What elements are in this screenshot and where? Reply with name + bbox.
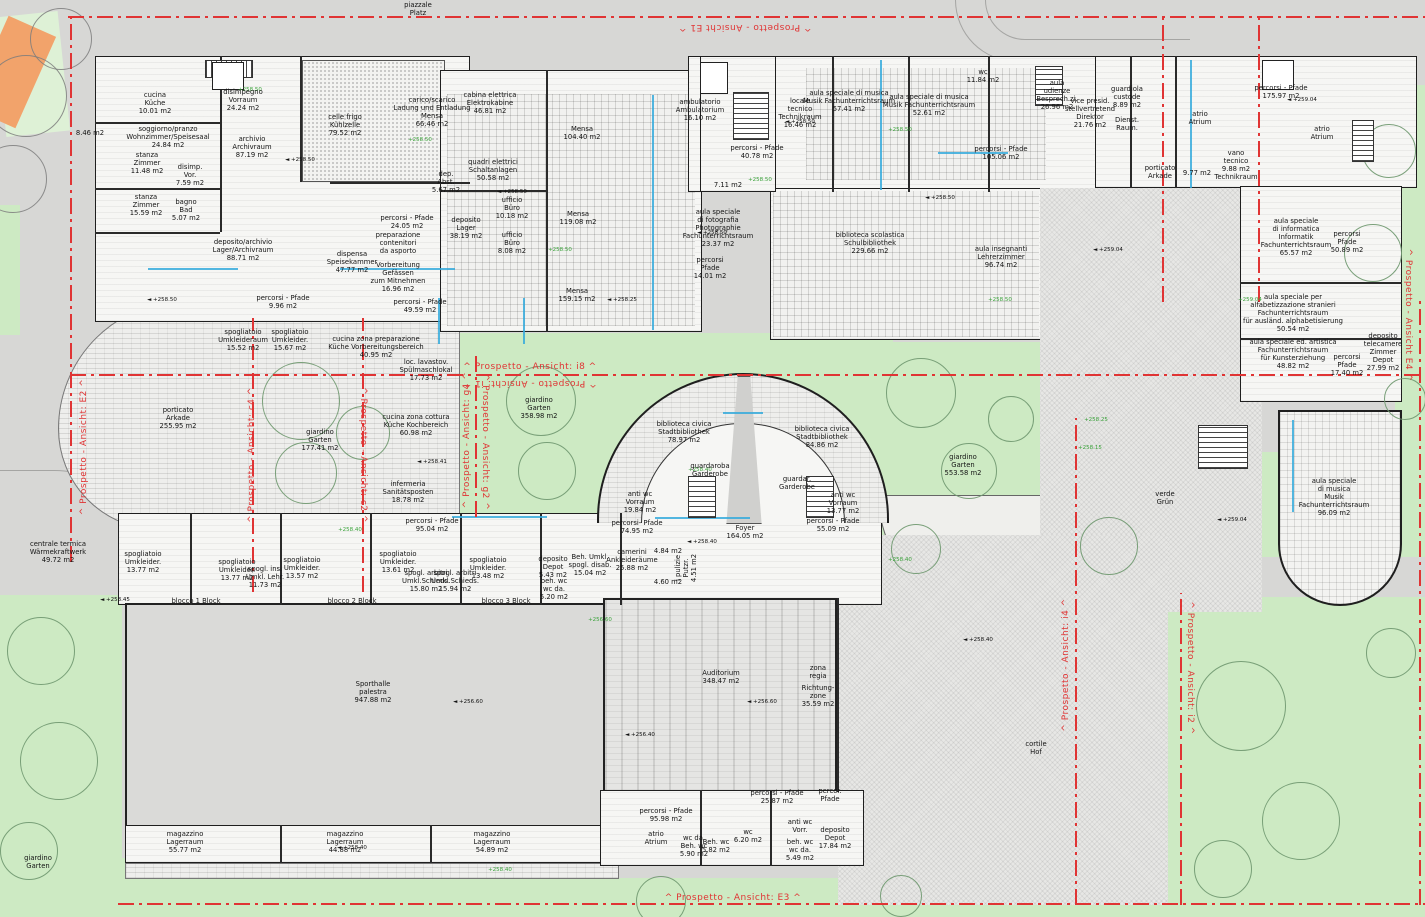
glass-line xyxy=(523,298,525,344)
wall-segment xyxy=(280,825,282,863)
tree-outline xyxy=(1080,517,1138,575)
room-label: Sporthalle palestra 947.88 m2 xyxy=(355,680,392,704)
tree-outline xyxy=(891,524,941,574)
section-label: ^ Prospetto - Ansicht: i2 ^ xyxy=(1185,601,1195,734)
glass-line xyxy=(723,412,763,414)
elevation-mark: +258.50 xyxy=(548,247,572,253)
room-label: centrale termica Wärmekraftwerk 49.72 m2 xyxy=(30,540,86,564)
elevation-mark: +258.50 xyxy=(408,137,432,143)
room-label: biblioteca scolastica Schulbibliothek 22… xyxy=(836,231,905,255)
section-label: ^ Prospetto - Ansicht: E2 ^ xyxy=(79,379,89,516)
elevation-mark: +258.40 xyxy=(338,527,362,533)
tree-outline xyxy=(1262,782,1340,860)
road-arc xyxy=(985,0,1190,40)
room-label: wc 11.84 m2 xyxy=(967,68,1000,84)
room-label: Mensa 104.40 m2 xyxy=(564,125,601,141)
room-label: percorsi- Pfade 74.95 m2 xyxy=(611,519,662,535)
room-label: beh. wc wc da. 5.49 m2 xyxy=(786,838,814,862)
room-label: guardiola custode 8.89 m2 xyxy=(1111,85,1143,109)
elevation-mark: ◄ +258.50 xyxy=(497,189,527,195)
elevation-mark: ◄ +258.45 xyxy=(100,597,130,603)
elevation-mark: ◄ +259.04 xyxy=(1217,517,1247,523)
room-label: anti wc Vorr. xyxy=(788,818,812,834)
elevation-mark: ◄ +256.60 xyxy=(747,699,777,705)
section-line xyxy=(70,16,72,562)
room-label: bagno Bad 5.07 m2 xyxy=(172,198,200,222)
elevation-mark: ◄ +258.50 xyxy=(147,297,177,303)
section-line xyxy=(1419,298,1421,905)
room-label: stanza Zimmer 11.48 m2 xyxy=(131,151,164,175)
room-label: Mensa 119.08 m2 xyxy=(560,210,597,226)
tree-outline xyxy=(1366,628,1416,678)
elevation-mark: +258.50 xyxy=(988,297,1012,303)
tree-outline xyxy=(1196,661,1286,751)
elevation-mark: ◄ +258.40 xyxy=(963,637,993,643)
cortile-plaza xyxy=(838,535,1168,905)
wall-segment xyxy=(1240,282,1402,284)
elevation-mark: ◄ +258.50 xyxy=(925,195,955,201)
room-label: aula speciale di musica Musik Fachunterr… xyxy=(1299,477,1369,517)
room-label: disimp. Vor. 7.59 m2 xyxy=(176,163,204,187)
room-label: deposito Lager 38.19 m2 xyxy=(450,216,483,240)
room-label: spogl. ins. Umkl. Lehr. 11.73 m2 xyxy=(246,565,284,589)
glass-line xyxy=(452,516,547,518)
south-walk xyxy=(125,863,619,879)
wall-segment xyxy=(95,232,220,234)
room-label: Beh. wc 5.82 m2 xyxy=(702,838,730,854)
glass-line xyxy=(148,268,238,270)
room-label: Foyer 164.05 m2 xyxy=(727,524,764,540)
room-label: cucina Küche 10.01 m2 xyxy=(139,91,172,115)
room-label: Dienst. Raum. xyxy=(1115,116,1139,132)
wall-segment xyxy=(190,513,192,605)
room-label: aula speciale per alfabetizzazione stran… xyxy=(1243,293,1343,333)
room-label: dep. Abst. 5.67 m2 xyxy=(432,170,460,194)
sporthalle xyxy=(125,603,617,827)
room-label: percorsi - Pfade 175.97 m2 xyxy=(1254,84,1307,100)
music-rooms-floor xyxy=(806,68,1046,180)
room-label: archivio Archivraum 87.19 m2 xyxy=(232,135,271,159)
room-label: guardaroba Garderobe xyxy=(690,462,729,478)
room-label: wc 6.20 m2 xyxy=(734,828,762,844)
room-label: percorsi - Pfade 95.98 m2 xyxy=(639,807,692,823)
elevation-mark: ◄ +258.41 xyxy=(417,459,447,465)
room-label: percorsi - Pfade 9.96 m2 xyxy=(256,294,309,310)
room-label: percorsi - Pfade 95.04 m2 xyxy=(405,517,458,533)
section-label: ^ Prospetto - Ansicht: E3 ^ xyxy=(665,893,802,903)
section-label: ^ Prospetto - Ansicht: i8 ^ xyxy=(463,362,596,372)
section-line xyxy=(1075,418,1077,905)
glass-line xyxy=(1292,420,1294,512)
elevation-mark: +258.15 xyxy=(1078,445,1102,451)
wall-segment xyxy=(370,513,372,605)
wall-segment xyxy=(837,598,839,792)
room-label: blocco 3 Block xyxy=(481,597,530,605)
room-label: percorsi Pfade 17.40 m2 xyxy=(1331,353,1364,377)
section-label: ^ Prospetto - Ansicht: g2 ^ xyxy=(480,374,490,511)
room-label: magazzino Lagerraum 54.89 m2 xyxy=(473,830,510,854)
room-label: percorsi Pfade 14.01 m2 xyxy=(694,256,727,280)
room-label: aula speciale di informatica Informatik … xyxy=(1261,217,1331,257)
wall-segment xyxy=(832,56,834,192)
section-line xyxy=(118,903,1425,905)
room-label: spogliatoio Umkleider. 13.48 m2 xyxy=(469,556,506,580)
room-label: deposito Depot 5.43 m2 xyxy=(538,555,567,579)
room-label: preparazione contenitori da asporto xyxy=(376,231,421,255)
elevation-mark: ◄ +258.50 xyxy=(285,157,315,163)
room-label: atrio Atrium xyxy=(1189,110,1212,126)
tree-outline xyxy=(0,822,58,880)
lawn-left-strip xyxy=(0,205,20,335)
stairs-icon xyxy=(1352,120,1374,162)
room-label: soggiorno/pranzo Wohnzimmer/Speisesaal 2… xyxy=(126,125,209,149)
room-label: ambulatorio Ambulatorium 16.10 m2 xyxy=(676,98,724,122)
elevator-icon xyxy=(212,62,244,90)
room-label: ufficio Büro 8.08 m2 xyxy=(498,231,526,255)
section-line xyxy=(1180,593,1182,905)
room-label: carico/scarico Ladung und Entladung Mens… xyxy=(393,96,470,128)
section-label: ^ Prospetto - Ansicht: g4 ^ xyxy=(462,372,472,509)
room-label: Vorbereitung Gefässen zum Mitnehmen 16.9… xyxy=(371,261,426,293)
wall-segment xyxy=(908,56,910,192)
room-label: i pulizie Putzr. 4.51 m2 xyxy=(674,554,698,582)
room-label: loc. lavastov. Spülmaschlokal 17.73 m2 xyxy=(399,358,452,382)
room-label: anti wc Vorraum 19.84 m2 xyxy=(624,490,657,514)
elevation-mark: +256.60 xyxy=(588,617,612,623)
room-label: giardino Garten 553.58 m2 xyxy=(945,453,982,477)
wall-segment xyxy=(95,122,220,124)
room-label: quadri elettrici Schaltanlagen 50.58 m2 xyxy=(468,158,518,182)
wall-segment xyxy=(300,56,302,182)
section-label: ^ Prospetto - Ansicht: i4 ^ xyxy=(1061,598,1071,731)
glass-line xyxy=(652,95,654,330)
room-label: percorsi - Pfade 24.05 m2 xyxy=(380,214,433,230)
room-label: aula speciale ed. artistica Fachunterric… xyxy=(1249,338,1336,370)
stairs-icon xyxy=(1198,425,1248,469)
room-label: aula speciale di fotografia Photographie… xyxy=(683,208,753,248)
tree-outline xyxy=(880,875,922,917)
section-line xyxy=(1258,18,1260,302)
tree-outline xyxy=(518,442,576,500)
wall-segment xyxy=(280,513,282,605)
room-label: percorsi - Pfade 55.09 m2 xyxy=(806,517,859,533)
room-label: blocco 2 Block xyxy=(327,597,376,605)
section-label: ^ Prospetto - Ansicht: c4 ^ xyxy=(247,387,257,523)
room-label: percorsi Pfade 50.89 m2 xyxy=(1331,230,1364,254)
room-label: giardino Garten 177.41 m2 xyxy=(302,428,339,452)
room-label: cucina zona cottura Küche Kochbereich 60… xyxy=(382,413,449,437)
room-label: 9.77 m2 xyxy=(1183,169,1211,177)
room-label: magazzino Lagerraum 44.88 m2 xyxy=(326,830,363,854)
glass-line xyxy=(880,60,882,190)
room-label: disimpegno Vorraum 24.24 m2 xyxy=(223,88,263,112)
room-label: magazzino Lagerraum 55.77 m2 xyxy=(166,830,203,854)
room-label: vice presid. stellvertretend Direktor 21… xyxy=(1065,97,1115,129)
room-label: stanza Zimmer 15.59 m2 xyxy=(130,193,163,217)
section-label: ^ Prospetto - Ansicht: c2 ^ xyxy=(358,387,368,523)
room-label: percorsi - Pfade 25.87 m2 xyxy=(750,789,803,805)
room-label: percor. Pfade xyxy=(818,787,841,803)
floor-plan-canvas: ^ Prospetto - Ansicht E1 ^^ Prospetto - … xyxy=(0,0,1425,917)
room-label: deposito/archivio Lager/Archivraum 88.71… xyxy=(213,238,274,262)
elevation-mark: ◄ +256.60 xyxy=(453,699,483,705)
stairs-icon xyxy=(733,92,769,140)
room-label: aula speciale di musica Musik Fachunterr… xyxy=(883,93,975,117)
tree-outline xyxy=(0,145,47,213)
section-label: ^ Prospetto - Ansicht E4 ^ xyxy=(1403,248,1413,381)
room-label: beh. wc wc da. 5.20 m2 xyxy=(540,577,568,601)
room-label: atrio Atrium xyxy=(1311,125,1334,141)
elevation-mark: +258.50 xyxy=(888,127,912,133)
room-label: spogliatoio Umkleideraum 15.52 m2 xyxy=(218,328,268,352)
room-label: spogliatoio Umkleider. 15.67 m2 xyxy=(271,328,308,352)
elevation-mark: +258.25 xyxy=(1084,417,1108,423)
room-label: vano tecnico 9.88 m2 Technikraum xyxy=(1214,149,1257,181)
elevation-mark: ◄ +258.40 xyxy=(687,539,717,545)
room-label: celle frigo Kühlzelle 79.52 m2 xyxy=(328,113,362,137)
room-label: Richtung- zone 35.59 m2 xyxy=(802,684,835,708)
tree-outline xyxy=(886,358,956,428)
tree-outline xyxy=(1194,840,1252,898)
room-label: cabina elettrica Elektrokabine 46.81 m2 xyxy=(464,91,517,115)
room-label: deposito Depot 17.84 m2 xyxy=(819,826,852,850)
room-label: deposito telecamere Zimmer Depot 27.99 m… xyxy=(1364,332,1402,372)
room-label: porticato Arkade 255.95 m2 xyxy=(160,406,197,430)
elevation-mark: +258.40 xyxy=(888,557,912,563)
room-label: aula speciale di musica Musik Fachunterr… xyxy=(803,89,895,113)
section-line xyxy=(68,16,1425,18)
elevation-mark: ◄ +256.40 xyxy=(625,732,655,738)
room-label: atrio Atrium xyxy=(645,830,668,846)
section-line xyxy=(70,374,1425,376)
room-label: porticato Arkade xyxy=(1145,164,1176,180)
elevation-mark: ◄ +259.04 xyxy=(1093,247,1123,253)
room-label: zona regia xyxy=(809,664,826,680)
room-label: cortile Hof xyxy=(1025,740,1046,756)
room-label: percorsi - Pfade 49.59 m2 xyxy=(393,298,446,314)
section-label: ^ Prospetto - Ansicht E1 ^ xyxy=(678,22,811,32)
room-label: spogliatoio Umkleider. 13.57 m2 xyxy=(283,556,320,580)
tree-outline xyxy=(988,396,1034,442)
room-label: piazzale Platz xyxy=(404,1,432,17)
tree-outline xyxy=(20,722,98,800)
room-label: spogliatoio Umkleider. 13.77 m2 xyxy=(124,550,161,574)
room-label: ufficio Büro 10.18 m2 xyxy=(496,196,529,220)
room-label: percorsi - Pfade 40.78 m2 xyxy=(730,144,783,160)
room-label: anti wc Vorraum 13.77 m2 xyxy=(827,491,860,515)
wall-segment xyxy=(546,70,548,332)
room-label: percorsi - Pfade 105.06 m2 xyxy=(974,145,1027,161)
room-label: aula insegnanti Lehrerzimmer 96.74 m2 xyxy=(975,245,1027,269)
elevator-icon xyxy=(700,62,728,94)
room-label: guardar. Garderobe xyxy=(779,475,815,491)
room-label: camerini Ankleideräume 25.88 m2 xyxy=(606,548,657,572)
room-label: verde Grün xyxy=(1155,490,1174,506)
room-label: giardino Garten xyxy=(24,854,52,870)
room-label: blocco 1 Block xyxy=(171,597,220,605)
room-label: Mensa 159.15 m2 xyxy=(559,287,596,303)
wall-segment xyxy=(430,825,432,863)
room-label: biblioteca civica Stadtbibliothek 78.97 … xyxy=(657,420,712,444)
stairs-icon xyxy=(688,476,716,518)
elevation-mark: +258.50 xyxy=(748,177,772,183)
wall-segment xyxy=(95,188,220,190)
room-label: 8.46 m2 xyxy=(76,129,104,137)
section-line xyxy=(1162,18,1164,302)
elevation-mark: ◄ +258.25 xyxy=(607,297,637,303)
room-label: Auditorium 348.47 m2 xyxy=(702,669,740,685)
room-label: 7.11 m2 xyxy=(714,181,742,189)
room-label: Beh. Umkl. spogl. disab. 15.04 m2 xyxy=(569,553,612,577)
elevation-mark: +258.40 xyxy=(488,867,512,873)
room-label: infermeria Sanitätsposten 18.78 m2 xyxy=(383,480,434,504)
room-label: giardino Garten 358.98 m2 xyxy=(521,396,558,420)
room-label: biblioteca civica Stadtbibliothek 84.86 … xyxy=(795,425,850,449)
tree-outline xyxy=(7,617,75,685)
room-label: cucina zona preparazione Küche Vorbereit… xyxy=(328,335,424,359)
